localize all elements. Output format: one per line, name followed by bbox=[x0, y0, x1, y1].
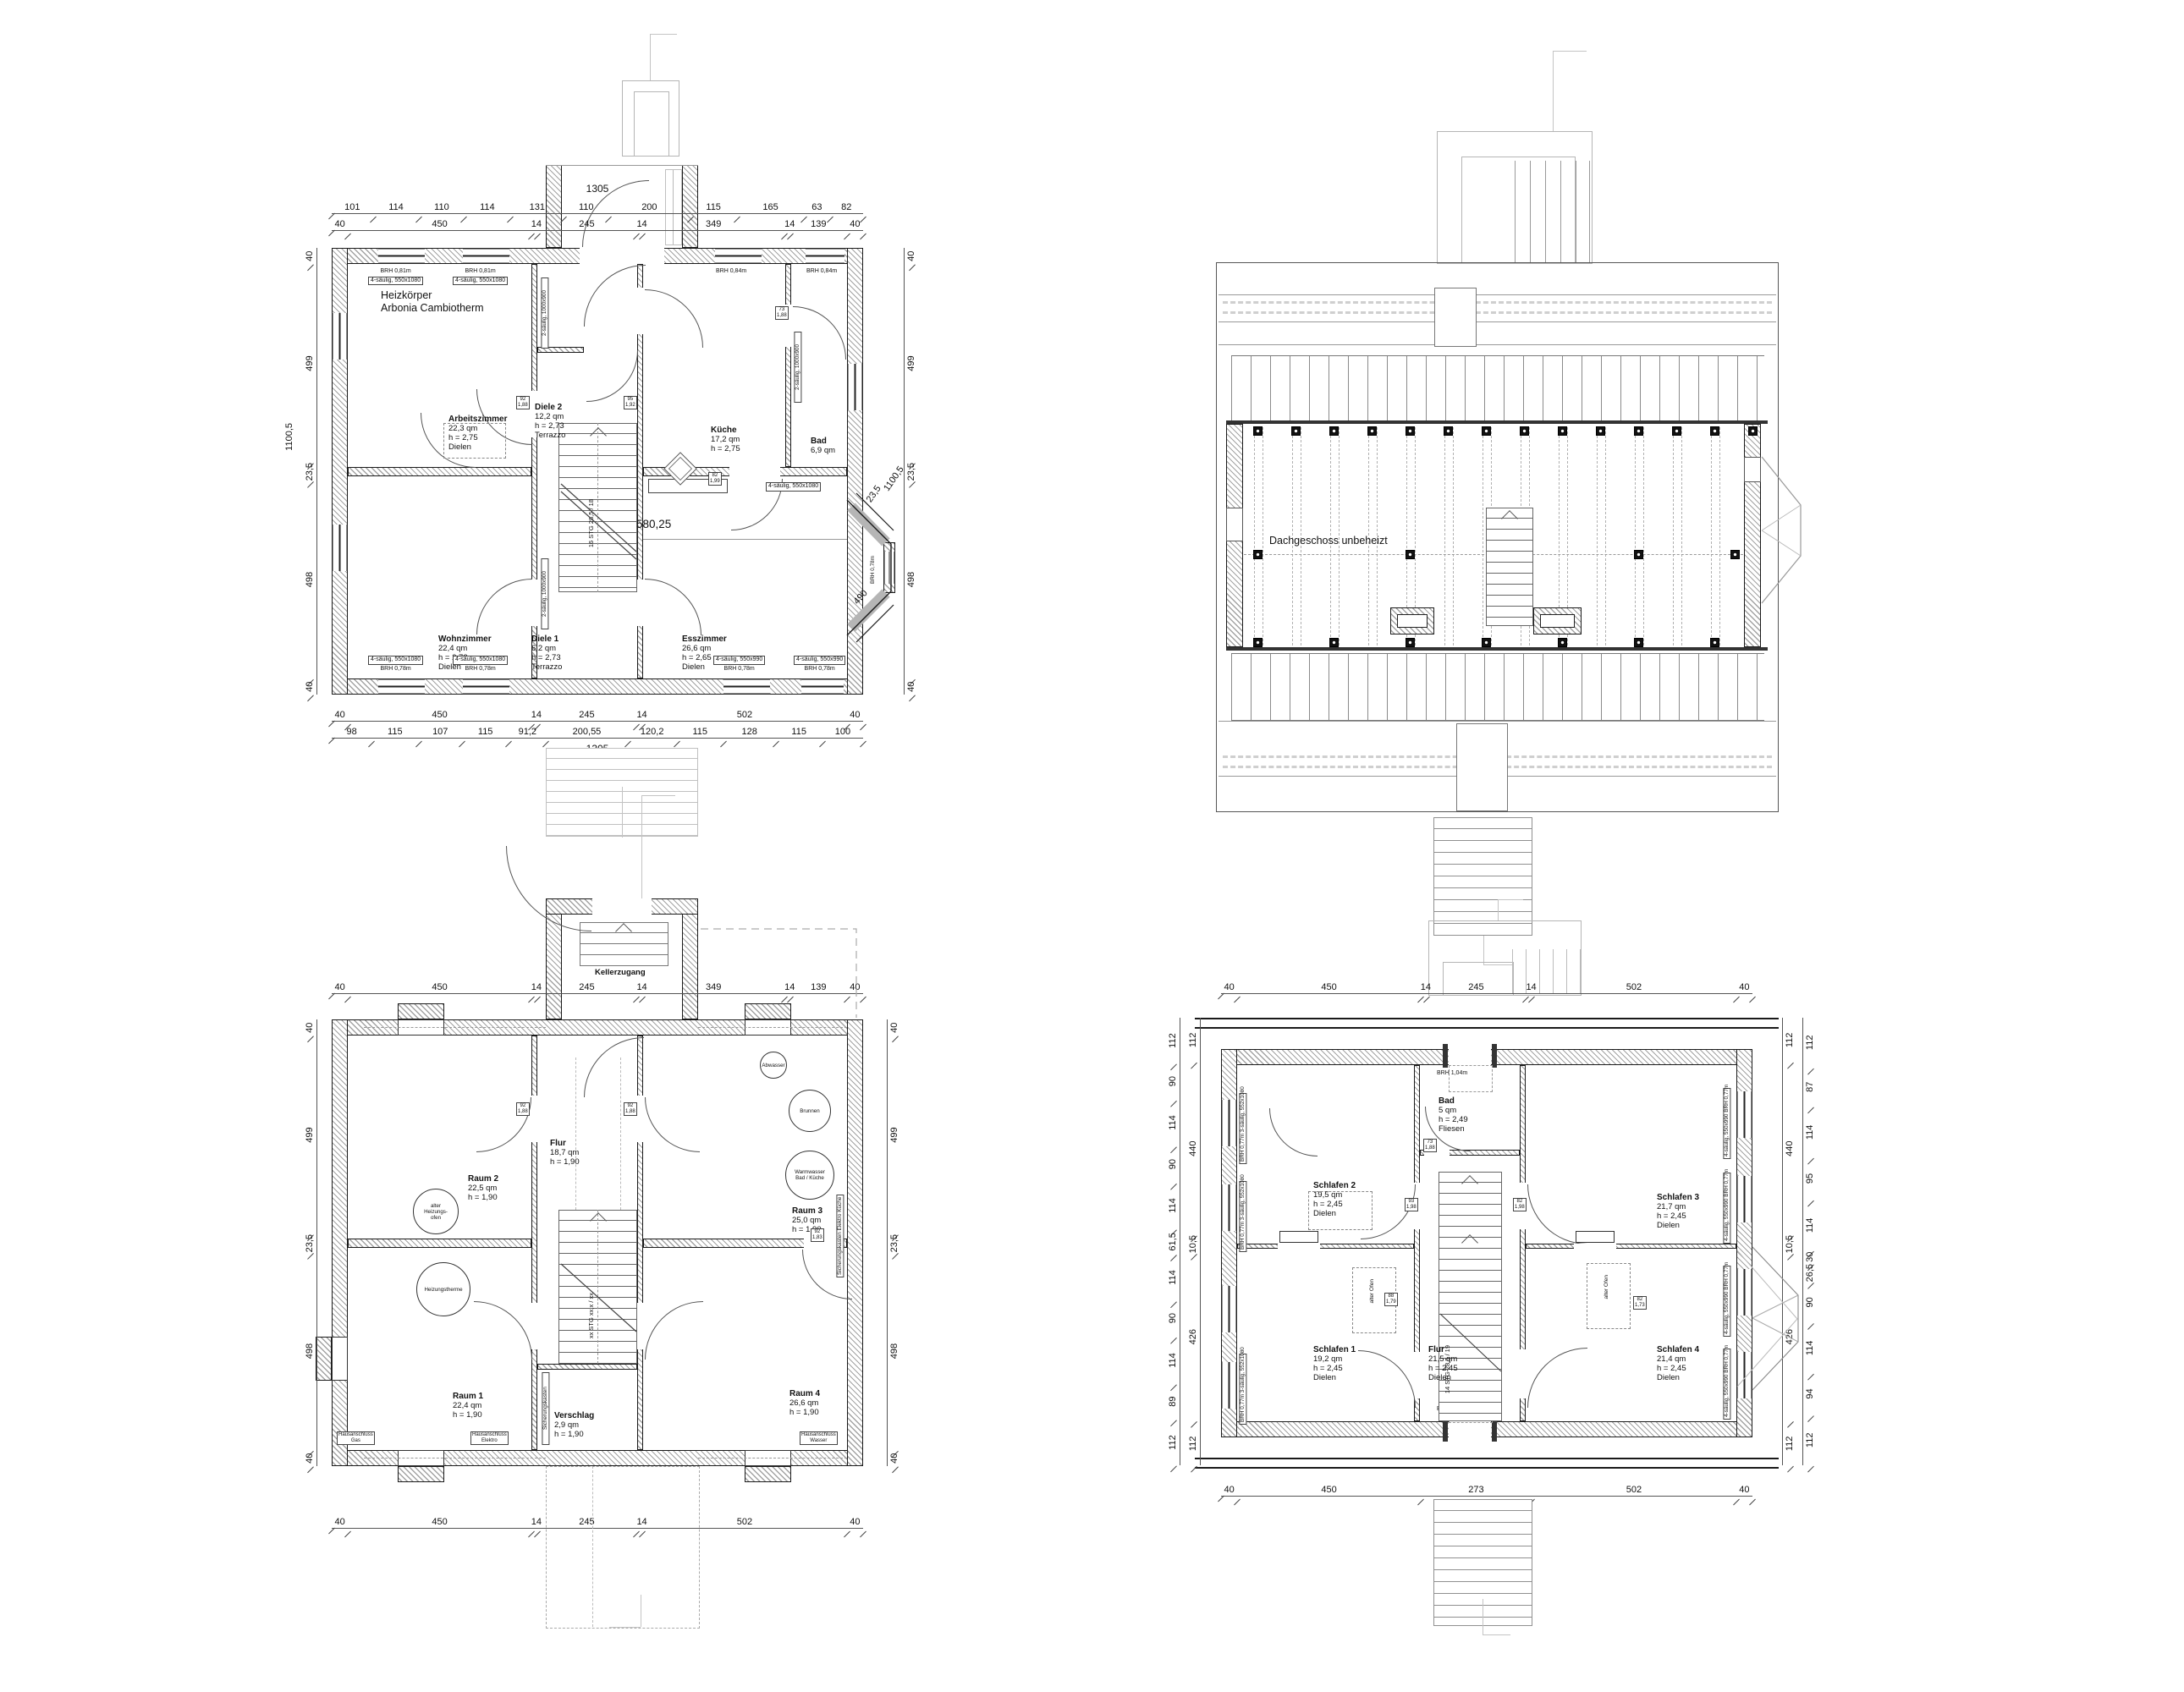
dim-segment: 14 bbox=[531, 709, 537, 721]
dim-segment: 90 bbox=[1803, 1283, 1817, 1322]
dim-segment: 90 bbox=[1166, 1146, 1180, 1183]
window-label: 4-säulig, 550x1080 bbox=[766, 482, 821, 492]
dim-segment: 40 bbox=[303, 678, 316, 695]
window-label: 4-säulig, 550x1080BRH 0,78m bbox=[368, 655, 423, 673]
ghost-line bbox=[698, 1458, 847, 1459]
anchor bbox=[1711, 639, 1719, 646]
door-opening bbox=[531, 1303, 537, 1349]
dim-segment: 40 bbox=[332, 1516, 348, 1528]
door-dim: 731,88 bbox=[1423, 1139, 1437, 1152]
dim-segment: 23,5 bbox=[303, 463, 316, 481]
window-label: 4-säulig, 550x1080BRH 0,78m bbox=[453, 655, 508, 673]
dim-segment: 90 bbox=[1166, 1300, 1180, 1337]
dim-segment: 115 bbox=[371, 726, 418, 738]
light-well bbox=[745, 1466, 791, 1482]
stair-dashed bbox=[620, 1057, 621, 1210]
dim-segment: 349 bbox=[642, 981, 784, 993]
door-arc bbox=[645, 579, 701, 635]
dim-segment: 40 bbox=[303, 1019, 316, 1036]
door-dim: 921,83 bbox=[811, 1228, 824, 1242]
window-label: 4-säulig, 550x990 BRH 0,77m bbox=[1723, 1349, 1730, 1420]
eaves-line bbox=[1219, 294, 1776, 295]
bay-window bbox=[883, 552, 895, 584]
window-label: 2-säulig, 1000x900 bbox=[541, 558, 548, 629]
dim-segment: 40 bbox=[1736, 1484, 1752, 1496]
dim-segment: 112 bbox=[1186, 1018, 1200, 1062]
dim-segment: 120,2 bbox=[628, 726, 677, 738]
window-label: 4-säulig, 550x990BRH 0,78m bbox=[794, 655, 845, 673]
wall-interior bbox=[537, 1364, 637, 1370]
rafter bbox=[1711, 427, 1720, 645]
wall-gap bbox=[1744, 457, 1761, 482]
door-opening bbox=[1278, 1244, 1320, 1249]
dim-chain-top: 4045014245143491413940 bbox=[332, 980, 863, 994]
anchor bbox=[1559, 639, 1566, 646]
chimney-inner bbox=[634, 91, 669, 157]
stud-band bbox=[1231, 653, 1764, 721]
window-label: BRH 0,77m 3-säulig, 552x1080 bbox=[1239, 1093, 1246, 1164]
room-flur: Flur21,5 qmh = 2,45Dielen bbox=[1428, 1345, 1458, 1382]
gutter-dashed bbox=[1223, 301, 1772, 304]
flag-line bbox=[650, 34, 677, 35]
dim-segment: 440 bbox=[1186, 1062, 1200, 1235]
door-arc bbox=[584, 265, 646, 327]
window-label: BRH 0,81m4-säulig, 550x1080 bbox=[453, 267, 508, 285]
anchor bbox=[1711, 427, 1719, 435]
dim-total: 1305 bbox=[332, 183, 863, 195]
anchor bbox=[1292, 427, 1300, 435]
window bbox=[1221, 1100, 1237, 1146]
dim-segment: 499 bbox=[888, 1036, 901, 1234]
room-bad: Bad5 qmh = 2,49Fliesen bbox=[1439, 1096, 1468, 1134]
dim-segment: 94 bbox=[1803, 1373, 1817, 1415]
dim-segment: 200,55 bbox=[546, 726, 628, 738]
window bbox=[847, 364, 863, 410]
anchor bbox=[1635, 639, 1642, 646]
dim-segment: 426 bbox=[1186, 1253, 1200, 1420]
dim-segment: 200 bbox=[608, 201, 690, 213]
chimney-notch bbox=[1434, 288, 1477, 347]
window bbox=[723, 678, 770, 695]
dim-segment: 14 bbox=[636, 218, 642, 230]
dim-segment: 114 bbox=[1803, 1322, 1817, 1373]
stair-dashed bbox=[575, 1057, 576, 1210]
anchor bbox=[1444, 427, 1452, 435]
chimney-core bbox=[1540, 614, 1575, 628]
dormer-opening bbox=[1449, 1049, 1491, 1065]
wall-right bbox=[847, 1019, 863, 1466]
room-schlafen1: Schlafen 119,2 qmh = 2,45Dielen bbox=[1313, 1345, 1356, 1382]
dim-chain-bottom-main: 40450142451450240 bbox=[332, 707, 863, 722]
brh-label: BRH 1,04m bbox=[1437, 1070, 1467, 1078]
door-dim: 921,88 bbox=[516, 1102, 530, 1116]
jamb bbox=[1492, 1044, 1497, 1068]
dim-segment: 112 bbox=[1783, 1421, 1796, 1465]
well-mark: Brunnen bbox=[789, 1090, 831, 1132]
door-arc bbox=[645, 1301, 703, 1360]
dim-segment: 63 bbox=[804, 201, 829, 213]
dim-segment: 498 bbox=[303, 481, 316, 678]
floor-plan-sheet: 1305 1011141101141311102001151656382 404… bbox=[0, 0, 2184, 1692]
dim-segment: 498 bbox=[905, 481, 918, 678]
service-box-wasser: HausanschlussWasser bbox=[800, 1431, 838, 1445]
room-schlafen3: Schlafen 321,7 qmh = 2,45Dielen bbox=[1657, 1193, 1699, 1230]
door-dim: 931,98 bbox=[1405, 1198, 1418, 1211]
door-leaf bbox=[1576, 1231, 1615, 1243]
window bbox=[332, 525, 348, 571]
dim-chain-bottom: 4045027350240 bbox=[1221, 1482, 1752, 1497]
jamb bbox=[1443, 1044, 1448, 1068]
dim-segment: 349 bbox=[642, 218, 784, 230]
chimney-core bbox=[1397, 614, 1428, 628]
bay-dim: 1100,5 bbox=[882, 464, 906, 493]
dim-segment: 61,5 bbox=[1166, 1229, 1180, 1255]
window bbox=[378, 678, 425, 695]
dim-segment: 450 bbox=[348, 709, 531, 721]
wall-interior bbox=[1526, 1244, 1736, 1249]
light-well bbox=[316, 1337, 332, 1381]
dim-segment: 26,5 bbox=[1803, 1264, 1817, 1282]
jamb bbox=[1443, 1418, 1448, 1442]
door-arc bbox=[645, 1097, 700, 1152]
dim-segment: 40 bbox=[332, 709, 348, 721]
eaves-line bbox=[1219, 321, 1776, 322]
old-stove-label: alter Ofen bbox=[1604, 1275, 1609, 1299]
dim-segment: 14 bbox=[531, 981, 537, 993]
dim-line bbox=[643, 539, 847, 540]
dim-segment: 14 bbox=[636, 981, 642, 993]
flag-line bbox=[1498, 899, 1499, 920]
light-well bbox=[745, 1003, 791, 1019]
window bbox=[463, 678, 509, 695]
dim-segment: 114 bbox=[1166, 1100, 1180, 1146]
dim-segment: 450 bbox=[348, 981, 531, 993]
dim-segment: 115 bbox=[677, 726, 723, 738]
door-opening bbox=[531, 1096, 537, 1142]
dim-chain-right-inner: 11244010,5426112 bbox=[1782, 1018, 1796, 1465]
service-box-gas: HausanschlussGas bbox=[337, 1431, 375, 1445]
door-dim: 921,88 bbox=[516, 396, 530, 409]
dim-segment: 107 bbox=[419, 726, 463, 738]
dim-chain-top-main: 4045014245143491413940 bbox=[332, 217, 863, 231]
dim-segment: 273 bbox=[1421, 1484, 1532, 1496]
dim-segment: 110 bbox=[564, 201, 608, 213]
dim-segment: 139 bbox=[790, 218, 847, 230]
anchor bbox=[1635, 427, 1642, 435]
anchor bbox=[1597, 427, 1604, 435]
dim-segment: 30 bbox=[1803, 1250, 1817, 1264]
dim-segment: 112 bbox=[1803, 1415, 1817, 1465]
dim-segment: 440 bbox=[1783, 1062, 1796, 1235]
dim-segment: 40 bbox=[847, 1516, 863, 1528]
dim-chain-right: 4049923,549840 bbox=[887, 1019, 901, 1466]
room-schlafen2: Schlafen 219,5 qmh = 2,45Dielen bbox=[1313, 1181, 1356, 1218]
dim-segment: 98 bbox=[332, 726, 371, 738]
anchor bbox=[1330, 639, 1338, 646]
dim-chain-right-outer: 11287114951143026,59011494112 bbox=[1802, 1018, 1817, 1465]
rafter bbox=[1444, 427, 1454, 645]
dim-segment: 90 bbox=[1166, 1063, 1180, 1100]
anchor bbox=[1406, 551, 1414, 558]
dim-segment: 14 bbox=[531, 218, 537, 230]
rafter bbox=[1597, 427, 1606, 645]
dim-segment: 450 bbox=[1237, 1484, 1421, 1496]
flag-line bbox=[622, 787, 623, 838]
dim-segment: 426 bbox=[1783, 1253, 1796, 1420]
flag-line bbox=[1498, 899, 1523, 900]
room-diele2: Diele 212,2 qmh = 2,73Terrazzo bbox=[535, 403, 565, 440]
door-opening bbox=[1574, 1244, 1616, 1249]
dim-segment: 115 bbox=[776, 726, 822, 738]
flag-line bbox=[1553, 51, 1554, 131]
dim-segment: 499 bbox=[303, 264, 316, 463]
door-opening bbox=[1520, 1349, 1526, 1398]
dim-segment: 14 bbox=[636, 709, 642, 721]
anchor bbox=[1254, 427, 1262, 435]
dim-segment: 498 bbox=[303, 1252, 316, 1450]
dim-chain-bottom-fine: 9811510711591,2200,55120,2115128115100 bbox=[332, 724, 863, 739]
flag-line bbox=[650, 34, 651, 80]
wall-gap bbox=[1226, 508, 1243, 541]
door-arc bbox=[802, 1250, 852, 1299]
stair-centerline bbox=[597, 1210, 598, 1364]
window-gap bbox=[332, 1337, 348, 1381]
dim-segment: 114 bbox=[1803, 1200, 1817, 1250]
dim-chain-right: 4049923,549840 bbox=[904, 248, 918, 695]
dim-segment: 245 bbox=[537, 981, 637, 993]
stair-label: 16 STG 28,5 / 18 bbox=[587, 499, 595, 547]
dim-segment: 40 bbox=[1221, 1484, 1237, 1496]
fuse-box-label2: Sicherungskasten bbox=[542, 1372, 549, 1445]
dim-segment: 112 bbox=[1803, 1018, 1817, 1068]
ghost-line bbox=[364, 1458, 546, 1459]
door-dim: 821,98 bbox=[1513, 1198, 1527, 1211]
window-label: BRH 0,77m 3-säulig, 552x1080 bbox=[1239, 1181, 1246, 1252]
sewage-mark: Abwasser bbox=[760, 1052, 787, 1079]
window bbox=[1221, 1286, 1237, 1332]
dormer-opening bbox=[1449, 1421, 1491, 1437]
door-dim: 881,79 bbox=[1384, 1293, 1398, 1306]
room-kueche: Küche17,2 qmh = 2,75 bbox=[711, 426, 740, 453]
door-arc bbox=[476, 579, 532, 634]
anchor bbox=[1731, 551, 1739, 558]
dim-segment: 40 bbox=[303, 1450, 316, 1466]
window-label: 4-säulig, 550x990 BRH 0,77m bbox=[1723, 1088, 1730, 1159]
heater-note: Heizkörper Arbonia Cambiotherm bbox=[381, 289, 484, 315]
chimney-flues bbox=[1515, 161, 1590, 262]
dim-segment: 87 bbox=[1803, 1068, 1817, 1107]
dim-segment: 82 bbox=[830, 201, 863, 213]
wall-interior bbox=[785, 264, 791, 467]
gutter-dashed bbox=[1223, 311, 1772, 314]
entry-label: Kellerzugang bbox=[595, 970, 646, 977]
dim-segment: 40 bbox=[332, 218, 348, 230]
door-opening bbox=[637, 580, 643, 626]
dim-segment: 502 bbox=[642, 709, 847, 721]
dim-segment: 23,5 bbox=[888, 1234, 901, 1252]
hot-water-mark: WarmwasserBad / Küche bbox=[785, 1151, 834, 1200]
dim-segment: 131 bbox=[510, 201, 564, 213]
window-label: 2-säulig, 1000x900 bbox=[541, 277, 548, 349]
window bbox=[1221, 1362, 1237, 1409]
window bbox=[463, 248, 509, 264]
flag-line bbox=[641, 795, 675, 796]
entry-opening bbox=[580, 248, 664, 264]
window-label: BRH 0,84m bbox=[806, 268, 837, 276]
dim-segment: 112 bbox=[1166, 1420, 1180, 1465]
dim-segment: 114 bbox=[464, 201, 510, 213]
dim-segment: 114 bbox=[1166, 1255, 1180, 1301]
anchor bbox=[1483, 639, 1490, 646]
wall-interior bbox=[348, 467, 531, 476]
eaves-line bbox=[1219, 721, 1776, 722]
anchor bbox=[1521, 427, 1528, 435]
anchor bbox=[1635, 551, 1642, 558]
dim-segment: 115 bbox=[690, 201, 737, 213]
window-label: BRH 0,81m4-säulig, 550x1080 bbox=[368, 267, 423, 285]
door-dim: 821,99 bbox=[708, 472, 722, 486]
diagonal-overlay bbox=[0, 0, 2184, 1692]
window bbox=[1736, 1269, 1752, 1316]
dim-segment: 110 bbox=[419, 201, 464, 213]
flag-line bbox=[1483, 1634, 1510, 1635]
eaves-line bbox=[1219, 344, 1776, 345]
room-raum1: Raum 122,4 qmh = 1,90 bbox=[453, 1392, 483, 1420]
dim-segment: 40 bbox=[332, 981, 348, 993]
anchor bbox=[1406, 427, 1414, 435]
room-raum4: Raum 426,6 qmh = 1,90 bbox=[789, 1389, 820, 1417]
wall-interior bbox=[348, 1239, 531, 1248]
door-opening bbox=[637, 1303, 643, 1349]
door-opening bbox=[531, 580, 537, 626]
porch-notch bbox=[1456, 723, 1508, 811]
flag-line bbox=[1483, 1599, 1483, 1634]
room-flur: Flur18,7 qmh = 1,90 bbox=[550, 1139, 580, 1167]
door-dim: 951,92 bbox=[624, 396, 637, 409]
dim-segment: 23,5 bbox=[905, 463, 918, 481]
door-opening bbox=[637, 1096, 643, 1142]
wall-plate bbox=[1226, 420, 1768, 424]
dim-segment: 40 bbox=[888, 1019, 901, 1036]
roof-band-bottom bbox=[1195, 1458, 1779, 1469]
entry-opening bbox=[592, 898, 652, 915]
dim-segment: 40 bbox=[847, 981, 863, 993]
door-arc bbox=[1358, 1350, 1416, 1408]
dim-chain-left: 4049923,549840 bbox=[303, 1019, 317, 1466]
dormer-dashed bbox=[1449, 1065, 1493, 1092]
door-dim: 731,88 bbox=[775, 306, 789, 320]
door-arc bbox=[645, 289, 703, 348]
window-label: 4-säulig, 550x990 BRH 0,77m bbox=[1723, 1173, 1730, 1244]
rafter bbox=[1673, 427, 1682, 645]
dim-segment: 23,5 bbox=[303, 1234, 316, 1252]
window bbox=[1736, 1352, 1752, 1398]
door-opening bbox=[729, 467, 780, 476]
window-label: 4-säulig, 550x990 BRH 0,77m bbox=[1723, 1266, 1730, 1337]
door-arc bbox=[1527, 1348, 1587, 1408]
ghost-line bbox=[698, 1027, 847, 1028]
door-arc bbox=[584, 1037, 644, 1097]
dim-segment: 114 bbox=[1803, 1107, 1817, 1157]
window bbox=[1221, 1184, 1237, 1231]
door-opening bbox=[1414, 1352, 1420, 1398]
dim-segment: 100 bbox=[822, 726, 863, 738]
room-bad: Bad6,9 qm bbox=[811, 437, 835, 455]
door-leaf bbox=[1279, 1231, 1318, 1243]
dim-segment: 115 bbox=[462, 726, 509, 738]
wall-plate bbox=[1226, 647, 1768, 651]
window bbox=[1736, 1091, 1752, 1138]
dim-segment: 40 bbox=[905, 678, 918, 695]
fuse-box-label: Sicherungskasten Elektro Küche bbox=[836, 1195, 844, 1277]
light-well bbox=[398, 1003, 444, 1019]
dim-segment: 40 bbox=[1736, 981, 1752, 993]
marker-box bbox=[443, 423, 506, 459]
flag-line bbox=[609, 1627, 641, 1628]
dim-segment: 114 bbox=[1166, 1338, 1180, 1384]
ghost-line bbox=[592, 1466, 593, 1627]
dim-segment: 114 bbox=[373, 201, 420, 213]
dim-segment: 14 bbox=[1421, 981, 1427, 993]
dim-segment: 245 bbox=[1427, 981, 1527, 993]
dim-segment: 40 bbox=[847, 218, 863, 230]
anchor bbox=[1254, 551, 1262, 558]
dim-segment: 14 bbox=[531, 1516, 537, 1528]
dim-segment: 10,5 bbox=[1783, 1235, 1796, 1253]
light-well bbox=[398, 1466, 444, 1482]
entry-wall bbox=[682, 898, 698, 1019]
dim-segment: 502 bbox=[1532, 981, 1736, 993]
flag-line bbox=[641, 1595, 641, 1627]
dim-segment: 14 bbox=[784, 218, 790, 230]
dim-segment: 450 bbox=[348, 218, 531, 230]
dim-segment: 499 bbox=[905, 264, 918, 463]
door-arc bbox=[586, 350, 638, 402]
dim-segment: 91,2 bbox=[509, 726, 546, 738]
ghost-line bbox=[364, 1027, 546, 1028]
door-arc bbox=[474, 1301, 532, 1360]
rafter bbox=[1635, 427, 1644, 645]
dim-chain-left: 4049923,549840 bbox=[303, 248, 317, 695]
window bbox=[806, 248, 844, 264]
dim-segment: 112 bbox=[1166, 1018, 1180, 1063]
anchor bbox=[1406, 639, 1414, 646]
window bbox=[715, 248, 762, 264]
dim-segment: 89 bbox=[1166, 1383, 1180, 1420]
dim-segment: 40 bbox=[888, 1450, 901, 1466]
dim-segment: 14 bbox=[784, 981, 790, 993]
dim-segment: 502 bbox=[1532, 1484, 1736, 1496]
window-label: BRH 0,77m 3-säulig, 552x1080 bbox=[1239, 1354, 1246, 1425]
room-diele1: Diele 16,2 qmh = 2,73Terrazzo bbox=[531, 634, 562, 672]
room-schlafen4: Schlafen 421,4 qmh = 2,45Dielen bbox=[1657, 1345, 1699, 1382]
window bbox=[332, 313, 348, 360]
anchor bbox=[1368, 427, 1376, 435]
dim-segment: 499 bbox=[303, 1036, 316, 1234]
wall-interior bbox=[1237, 1244, 1414, 1249]
dim-segment: 40 bbox=[847, 709, 863, 721]
old-stove-label: alter Ofen bbox=[1369, 1279, 1375, 1304]
window-label: 2-säulig, 1000x900 bbox=[794, 332, 801, 403]
old-furnace-mark: alterHeizungs-ofen bbox=[413, 1189, 459, 1234]
wall-right bbox=[847, 248, 863, 695]
flag-line bbox=[1553, 51, 1587, 52]
bay-dim: 23,5 bbox=[865, 484, 883, 504]
service-box-elektro: HausanschlussElektro bbox=[470, 1431, 509, 1445]
dim-segment: 128 bbox=[723, 726, 776, 738]
dim-segment: 40 bbox=[905, 248, 918, 264]
dim-segment: 245 bbox=[537, 709, 637, 721]
